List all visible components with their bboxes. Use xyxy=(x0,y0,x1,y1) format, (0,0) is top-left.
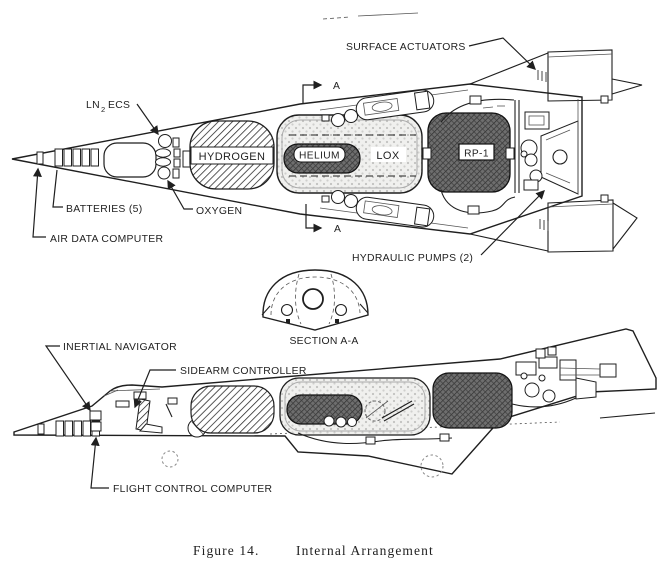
engine-machinery-side xyxy=(512,347,616,407)
lower-wing-pod xyxy=(355,196,435,229)
engine-gimbal xyxy=(541,121,578,194)
svg-text:AIR DATA COMPUTER: AIR DATA COMPUTER xyxy=(50,234,163,245)
section-aa-label: SECTION A-A xyxy=(289,336,358,347)
upper-elevon xyxy=(538,50,642,103)
internal-arrangement-figure: HYDROGEN LOX HELIUM RP-1 xyxy=(0,0,659,574)
section-center-circle xyxy=(303,289,323,309)
gear-circle-aft xyxy=(421,455,443,477)
gear-circle-forward xyxy=(162,451,178,467)
air-data-computer-box xyxy=(37,152,43,164)
caption-prefix: Figure 14. xyxy=(193,543,260,558)
figure-page: HYDROGEN LOX HELIUM RP-1 xyxy=(0,0,659,574)
helium-label: HELIUM xyxy=(299,151,340,162)
air-data-computer-side xyxy=(38,424,44,434)
svg-text:ECS: ECS xyxy=(108,100,130,111)
section-aa-view: SECTION A-A xyxy=(262,270,368,347)
callout-inertial-navigator: INERTIAL NAVIGATOR xyxy=(46,342,177,410)
battery-cell xyxy=(65,421,73,436)
battery-cell xyxy=(55,149,63,166)
battery-cell xyxy=(56,421,64,436)
rp1-tank-side xyxy=(433,373,512,428)
callout-flight-control-computer: FLIGHT CONTROL COMPUTER xyxy=(91,438,272,495)
section-marker-a-label: A xyxy=(333,81,340,92)
vent-valve xyxy=(332,191,345,204)
lower-elevon xyxy=(540,195,637,252)
battery-cell xyxy=(82,149,90,166)
svg-text:INERTIAL NAVIGATOR: INERTIAL NAVIGATOR xyxy=(63,342,177,353)
vent-valve xyxy=(332,114,345,127)
hydrogen-label: HYDROGEN xyxy=(199,151,266,163)
equipment-bay xyxy=(104,143,156,177)
battery-cell xyxy=(64,149,72,166)
battery-cell xyxy=(83,421,91,436)
battery-cell xyxy=(91,149,99,166)
wing-leading-edge-lower xyxy=(470,234,548,251)
svg-text:LN: LN xyxy=(86,100,100,111)
hydrogen-tank-side xyxy=(191,386,274,433)
side-view: INERTIAL NAVIGATOR SIDEARM CONTROLLER FL… xyxy=(14,329,656,495)
svg-text:OXYGEN: OXYGEN xyxy=(196,206,242,217)
rp1-tank-top: RP-1 xyxy=(423,106,514,192)
svg-text:2: 2 xyxy=(101,105,105,114)
actuator-marks-lower xyxy=(540,219,548,231)
scan-artifact-line xyxy=(323,13,418,19)
caption-title: Internal Arrangement xyxy=(296,543,434,558)
vent-valve xyxy=(345,110,358,123)
battery-cell xyxy=(73,149,81,166)
wing-leading-edge-upper xyxy=(470,53,548,84)
nozzle-box xyxy=(600,364,616,377)
svg-text:FLIGHT CONTROL COMPUTER: FLIGHT CONTROL COMPUTER xyxy=(113,484,272,495)
callout-surface-actuators: SURFACE ACTUATORS xyxy=(346,38,535,69)
lox-label: LOX xyxy=(376,150,399,162)
vent-valve xyxy=(345,195,358,208)
upper-wing-pod xyxy=(355,89,435,122)
svg-text:SIDEARM CONTROLLER: SIDEARM CONTROLLER xyxy=(180,366,307,377)
helium-tank-top: HELIUM xyxy=(284,144,360,173)
top-view-plan: HYDROGEN LOX HELIUM RP-1 xyxy=(12,38,642,264)
svg-text:BATTERIES (5): BATTERIES (5) xyxy=(66,204,142,215)
battery-cell xyxy=(74,421,82,436)
rp1-label: RP-1 xyxy=(464,149,489,160)
svg-text:SURFACE ACTUATORS: SURFACE ACTUATORS xyxy=(346,42,466,53)
battery-bank-top xyxy=(55,149,99,166)
flight-control-computer-box xyxy=(91,422,101,431)
ln2-sphere xyxy=(159,135,172,148)
callout-ln2-ecs: LN 2 ECS xyxy=(86,100,158,134)
inertial-navigator-box xyxy=(90,411,101,420)
figure-caption: Figure 14. Internal Arrangement xyxy=(193,543,434,558)
hydrogen-tank-top: HYDROGEN xyxy=(190,121,274,189)
svg-text:HYDRAULIC PUMPS (2): HYDRAULIC PUMPS (2) xyxy=(352,253,473,264)
oxygen-sphere xyxy=(158,167,170,179)
actuator-marks-upper xyxy=(538,70,546,82)
section-marker-a-label: A xyxy=(334,224,341,235)
